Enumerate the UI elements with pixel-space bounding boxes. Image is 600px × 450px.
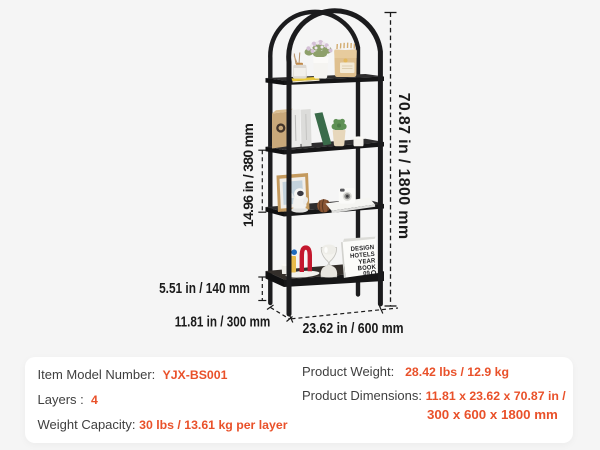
svg-text:14.96 in / 380 mm: 14.96 in / 380 mm (240, 124, 256, 228)
svg-text:23.62 in / 600 mm: 23.62 in / 600 mm (302, 320, 403, 336)
svg-text:09: 09 (363, 270, 371, 278)
svg-text:11.81 in / 300 mm: 11.81 in / 300 mm (175, 313, 271, 330)
svg-text:5.51 in / 140 mm: 5.51 in / 140 mm (159, 280, 250, 297)
svg-text:70.87 in / 1800 mm: 70.87 in / 1800 mm (395, 93, 412, 240)
